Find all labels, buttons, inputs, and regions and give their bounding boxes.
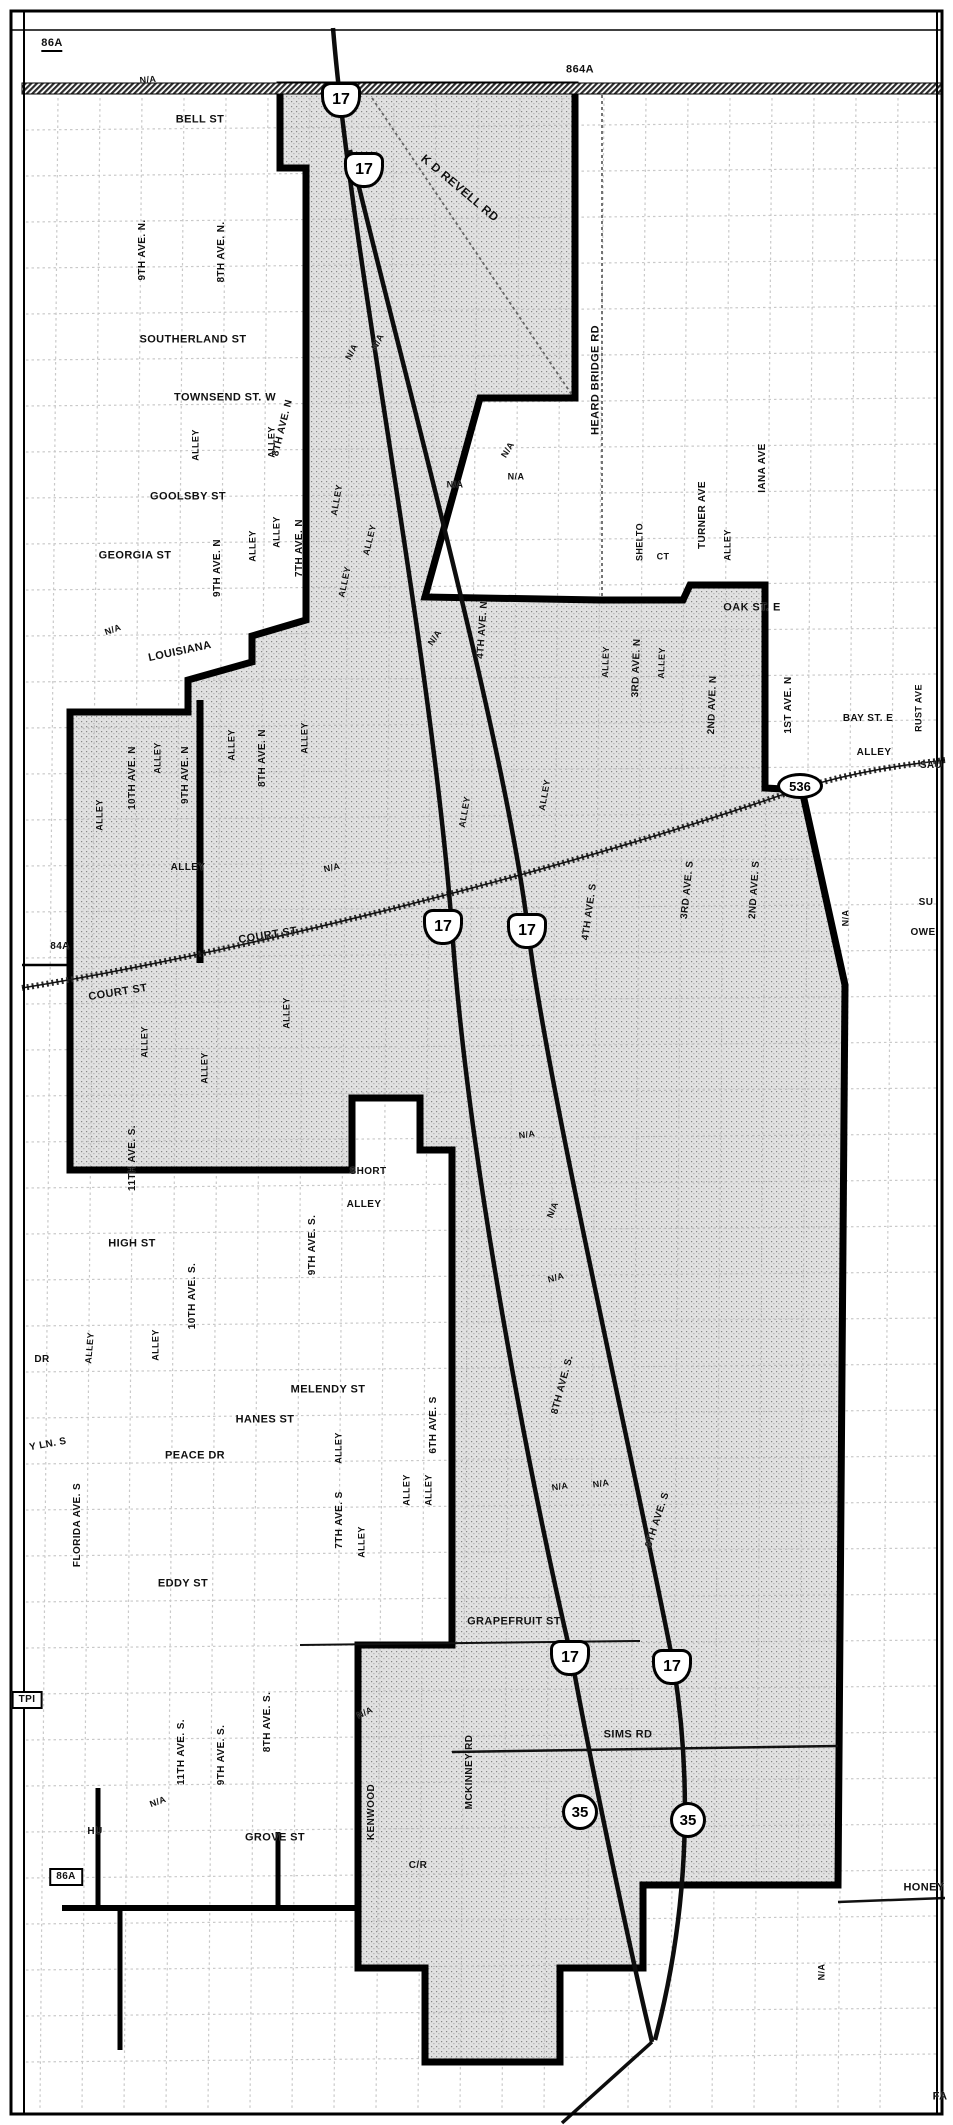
street-label: KENWOOD	[367, 1784, 377, 1840]
street-label: N/A	[149, 1795, 168, 1809]
street-label: OAK ST. E	[723, 603, 780, 614]
route-shield-17: 17	[344, 152, 384, 188]
street-label: ALLEY	[201, 1052, 210, 1084]
street-label: 2ND AVE. N	[707, 675, 719, 734]
street-label: SIMS RD	[604, 1730, 653, 1741]
street-label: N/A	[370, 333, 386, 352]
street-label: 3RD AVE. N	[631, 638, 643, 697]
street-label: ALLEY	[403, 1474, 412, 1506]
street-label: N/A	[323, 862, 341, 874]
street-label: 4TH AVE. S	[581, 883, 599, 941]
label-layer: 86A864AN/ABELL STK D REVELL RDHEARD BRID…	[0, 0, 953, 2125]
street-label: K D REVELL RD	[419, 152, 501, 224]
route-shield-35: 35	[670, 1802, 706, 1838]
street-label: ALLEY	[347, 1200, 382, 1210]
street-label: ALLEY	[358, 1526, 367, 1558]
street-label: N/A	[592, 1478, 610, 1489]
street-label: GEORGIA ST	[99, 551, 172, 562]
street-label: ALLEY	[857, 748, 892, 758]
street-label: ALLEY	[273, 516, 282, 548]
street-label: SOUTHERLAND ST	[139, 335, 246, 346]
street-label: GOOLSBY ST	[150, 492, 226, 503]
street-label: EDDY ST	[158, 1579, 208, 1590]
street-label: ALLEY	[330, 484, 344, 517]
street-label: N/A	[546, 1201, 561, 1220]
street-label: C/R	[409, 1861, 427, 1871]
street-label: ALLEY	[458, 796, 472, 829]
street-label: 1ST AVE. N	[784, 676, 794, 733]
street-label: N/A	[427, 629, 444, 648]
street-label: 86A	[49, 1868, 83, 1886]
street-label: Y LN. S	[29, 1437, 68, 1453]
street-label: COURT ST	[88, 983, 148, 1003]
street-label: TURNER AVE	[698, 481, 708, 549]
street-label: 8TH AVE. N	[258, 729, 268, 787]
street-label: BAY ST. E	[843, 714, 893, 724]
street-label: 11TH AVE. S.	[128, 1125, 138, 1191]
street-label: TPI	[12, 1691, 43, 1709]
street-label: 84A	[50, 942, 70, 952]
street-label: DR	[34, 1355, 49, 1365]
street-label: ALLEY	[335, 1432, 344, 1464]
street-label: 11TH AVE. S.	[177, 1719, 187, 1785]
street-label: 10TH AVE. S.	[188, 1263, 198, 1330]
street-label: COURT ST	[238, 926, 298, 946]
street-label: PEACE DR	[165, 1451, 225, 1462]
street-label: 7TH AVE. N	[295, 519, 305, 577]
street-label: N/A	[500, 441, 516, 460]
street-label: HONEY	[903, 1883, 944, 1894]
street-label: CT	[657, 553, 670, 562]
route-shield-17: 17	[550, 1640, 590, 1676]
street-label: 10TH AVE. N	[128, 746, 138, 810]
street-label: ALLEY	[601, 646, 611, 678]
street-label: 4TH AVE. N	[476, 601, 490, 659]
street-label: ALLEY	[152, 1329, 161, 1361]
street-label: 9TH AVE. N	[181, 746, 191, 804]
street-label: N/A	[551, 1481, 569, 1492]
scanned-street-map: 86A864AN/ABELL STK D REVELL RDHEARD BRID…	[0, 0, 953, 2125]
street-label: ALLEY	[154, 742, 163, 774]
street-label: N/A	[356, 1705, 375, 1720]
street-label: 86A	[41, 38, 62, 52]
street-label: HEARD BRIDGE RD	[591, 325, 602, 435]
street-label: N/A	[104, 623, 123, 637]
street-label: ALLEY	[96, 799, 105, 831]
street-label: SAU	[920, 761, 942, 771]
street-label: ALLEY	[228, 729, 237, 761]
street-label: 9TH AVE. S.	[217, 1725, 227, 1786]
route-shield-17: 17	[507, 913, 547, 949]
street-label: ALLEY	[337, 566, 352, 599]
street-label: ALLEY	[724, 529, 733, 561]
route-shield-17: 17	[652, 1649, 692, 1685]
street-label: HANES ST	[236, 1415, 295, 1426]
street-label: 3RD AVE. S	[680, 860, 696, 919]
street-label: HIGH ST	[108, 1239, 155, 1250]
street-label: GROVE ST	[245, 1833, 305, 1844]
street-label: 8TH AVE. S.	[550, 1354, 575, 1415]
street-label: ALLEY	[192, 429, 201, 461]
street-label: SHELTO	[636, 523, 645, 561]
street-label: ALLEY	[141, 1026, 150, 1058]
street-label: ALLEY	[84, 1332, 96, 1364]
street-label: 864A	[566, 65, 594, 76]
street-label: MELENDY ST	[291, 1385, 366, 1396]
street-label: 8TH AVE. S.	[263, 1692, 273, 1753]
street-label: N/A	[447, 481, 464, 490]
street-label: 9TH AVE. N	[213, 539, 223, 597]
street-label: ALLEY	[362, 524, 378, 557]
street-label: MCKINNEY RD	[465, 1735, 475, 1810]
street-label: N/A	[508, 473, 525, 482]
street-label: N/A	[344, 343, 360, 362]
street-label: FLORIDA AVE. S	[73, 1483, 83, 1567]
street-label: GRAPEFRUIT ST	[467, 1617, 561, 1628]
street-label: 8TH AVE. N.	[217, 221, 227, 282]
street-label: ALLEY	[657, 647, 667, 679]
street-label: 7TH AVE. S	[335, 1491, 345, 1548]
street-label: FA	[933, 2092, 948, 2103]
street-label: SHORT	[350, 1167, 387, 1177]
street-label: BELL ST	[176, 115, 224, 126]
street-label: LOUISIANA	[148, 640, 213, 664]
route-shield-17: 17	[321, 82, 361, 118]
street-label: 9TH AVE. N.	[138, 219, 148, 280]
street-label: N/A	[518, 1129, 536, 1140]
street-label: OWE	[910, 928, 935, 938]
street-label: 8TH AVE. S	[644, 1491, 671, 1549]
route-shield-35: 35	[562, 1794, 598, 1830]
street-label: N/A	[139, 75, 156, 85]
route-shield-17: 17	[423, 909, 463, 945]
street-label: ALLEY	[301, 722, 310, 754]
street-label: ALLEY	[249, 530, 258, 562]
street-label: IANA AVE	[758, 443, 768, 493]
street-label: N/A	[842, 910, 851, 927]
street-label: N/A	[547, 1271, 565, 1284]
street-label: ALLEY	[425, 1474, 434, 1506]
street-label: 6TH AVE. S	[429, 1396, 439, 1453]
street-label: 9TH AVE. S.	[308, 1215, 318, 1276]
street-label: HU	[87, 1827, 102, 1837]
street-label: ALLEY	[171, 863, 206, 873]
street-label: TOWNSEND ST. W	[174, 393, 276, 404]
street-label: 2ND AVE. S	[748, 860, 762, 919]
street-label: N/A	[818, 1964, 827, 1981]
street-label: SU	[919, 898, 934, 908]
street-label: ALLEY	[538, 779, 552, 812]
street-label: ALLEY	[283, 997, 292, 1029]
route-shield-536: 536	[777, 773, 823, 799]
street-label: RUST AVE	[915, 684, 924, 732]
